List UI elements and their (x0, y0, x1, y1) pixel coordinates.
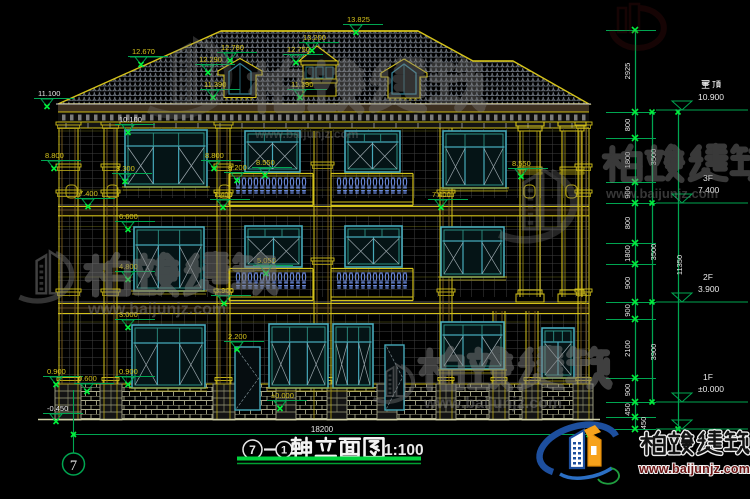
svg-text:13.825: 13.825 (347, 15, 370, 24)
svg-text:2100: 2100 (623, 340, 632, 357)
svg-text:2925: 2925 (623, 63, 632, 80)
svg-text:450: 450 (623, 403, 632, 416)
svg-text:-0.450: -0.450 (47, 404, 68, 413)
svg-text:6.600: 6.600 (119, 212, 138, 221)
svg-text:10.100: 10.100 (119, 115, 142, 124)
svg-text:11350: 11350 (675, 255, 684, 275)
svg-text:8.300: 8.300 (116, 164, 135, 173)
svg-text:±0.000: ±0.000 (698, 384, 724, 394)
svg-text:8.550: 8.550 (512, 159, 531, 168)
svg-text:12.670: 12.670 (132, 47, 155, 56)
svg-text:13.200: 13.200 (303, 33, 326, 42)
svg-text:12.780: 12.780 (221, 43, 244, 52)
svg-text:8.550: 8.550 (256, 158, 275, 167)
svg-text:900: 900 (623, 304, 632, 317)
svg-text:8.800: 8.800 (205, 151, 224, 160)
svg-text:0.900: 0.900 (119, 367, 138, 376)
svg-text:7: 7 (249, 443, 256, 457)
svg-text:1800: 1800 (623, 245, 632, 262)
svg-text:7: 7 (70, 458, 77, 474)
svg-text:1F: 1F (703, 372, 713, 382)
svg-text:900: 900 (623, 277, 632, 290)
svg-text:1: 1 (281, 445, 287, 457)
svg-text:2F: 2F (703, 272, 713, 282)
svg-text:www.baijunjz.com: www.baijunjz.com (423, 395, 562, 412)
svg-text:www.baijunjz.com: www.baijunjz.com (254, 127, 359, 141)
svg-text:800: 800 (623, 217, 632, 230)
svg-text:10.900: 10.900 (698, 92, 724, 102)
svg-text:3.900: 3.900 (698, 284, 720, 294)
svg-text:7.400: 7.400 (214, 190, 233, 199)
svg-text:450: 450 (639, 417, 648, 430)
svg-text:www.baijunjz.com: www.baijunjz.com (87, 301, 226, 318)
svg-text:3900: 3900 (649, 344, 658, 361)
svg-text:0.900: 0.900 (47, 367, 66, 376)
svg-text:7.400: 7.400 (432, 190, 451, 199)
svg-text:0.600: 0.600 (78, 374, 97, 383)
svg-text:3500: 3500 (649, 244, 658, 261)
svg-text:8.200: 8.200 (228, 163, 247, 172)
svg-text:12.750: 12.750 (287, 45, 310, 54)
svg-text:800: 800 (623, 119, 632, 132)
svg-text:www.baijunjz.com: www.baijunjz.com (605, 186, 718, 201)
svg-text:www.baijunjz.com: www.baijunjz.com (638, 462, 750, 476)
svg-text:900: 900 (623, 384, 632, 397)
svg-text:1:100: 1:100 (384, 442, 424, 459)
svg-text:8.800: 8.800 (45, 151, 64, 160)
svg-text:±0.000: ±0.000 (271, 391, 294, 400)
svg-text:7.400: 7.400 (79, 189, 98, 198)
svg-text:11.100: 11.100 (38, 89, 60, 98)
svg-text:18200: 18200 (311, 425, 334, 434)
svg-text:2.200: 2.200 (228, 332, 247, 341)
